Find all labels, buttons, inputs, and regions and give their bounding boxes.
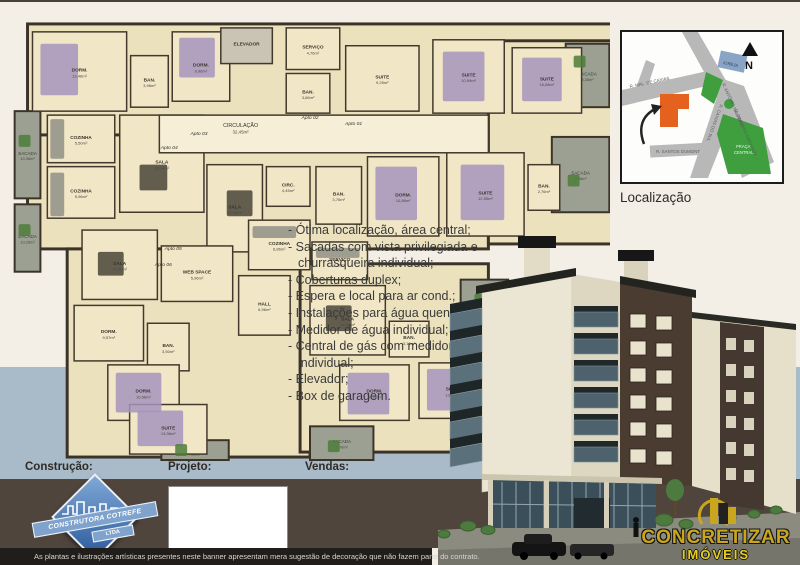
plan-room-area: 10,26m² [20,239,35,244]
car [512,542,566,556]
shrub [460,521,476,531]
plan-room-area: 2,76m² [538,189,551,194]
window [744,444,754,456]
balcony-slab [574,387,618,393]
plan-room-area: 5,50m² [75,141,88,146]
building-pillar [544,480,549,528]
window [726,390,736,402]
window [630,422,646,436]
window [726,468,736,480]
plan-room-area: 5,96m² [75,194,88,199]
balcony-glass [574,393,618,408]
plan-room-area: 6,86m² [273,247,286,252]
sales-logo-subtitle: IMÓVEIS [636,547,796,562]
construction-label: Construção: [25,461,93,473]
building-pillar [488,480,493,528]
north-label: N [745,60,753,72]
window [630,341,646,355]
sales-logo-name: CONCRETIZAR [636,527,796,549]
window [726,364,736,376]
balcony-slab [574,360,618,366]
plan-room-area: 9,57m² [102,335,115,340]
window [744,340,754,352]
plan-corridor [159,115,488,153]
plan-room-area: 10,56m² [136,394,151,399]
balcony-glass [574,447,618,462]
plan-apartment-label: Apto 03 [189,131,207,137]
banner: SACADA10,36m²SACADA10,26m²SACADA8,36m²SA… [0,0,800,565]
window [744,418,754,430]
plan-room-area: 10,36m² [20,156,35,161]
shrub [481,526,495,535]
plan-room-area: 4,76m² [307,50,320,55]
building-left-face [482,274,572,492]
window [656,397,672,411]
window [656,316,672,330]
plan-circulation-label: CIRCULAÇÃO [223,122,258,129]
plan-circulation-area: 32,45m² [233,129,250,134]
street-label: R. SANTOS DUMONT [656,149,700,154]
map-title: Localização [620,190,788,205]
window [630,368,646,382]
builder-logo: CONSTRUTORA COTREFE LTDA [30,478,160,556]
plan-room-area: 9,25m² [376,80,389,85]
window [744,470,754,482]
building-chimney-cap [518,236,556,248]
plan-furniture [574,56,586,68]
window [656,451,672,465]
car-wheel [550,552,558,560]
plan-room-area: 10,86m² [396,198,411,203]
sales-label: Vendas: [305,461,349,473]
plan-room-area: 12,55m² [478,196,493,201]
plan-room-area: 15,68m² [227,210,242,215]
plan-room-area: 20,14m² [154,165,169,170]
plan-room-area: 4,45m² [282,188,295,193]
plan-furniture [19,224,31,236]
window [744,366,754,378]
plan-room-area: 3,50m² [162,349,175,354]
plan-room-area: 3,76m² [332,197,345,202]
car-cabin [524,534,552,544]
project-logo-placeholder [168,486,288,554]
plan-furniture [568,175,580,187]
plan-room-area: 21,50m² [112,267,127,272]
balcony-slab [574,306,618,312]
plan-room-area: 8,36m² [581,77,594,82]
plan-furniture [50,119,64,159]
window [656,343,672,357]
plan-apartment-label: Apto 06 [154,262,172,268]
window [630,314,646,328]
sales-logo-building-icon [692,488,740,528]
window [630,449,646,463]
sales-logo: CONCRETIZAR IMÓVEIS [636,488,796,564]
balcony-glass [574,366,618,381]
plan-room-area: 10,99m² [461,78,476,83]
plan-apartment-label: Apto 01 [344,121,362,127]
plan-room-label: ELEVADOR [234,42,261,48]
window [726,338,736,350]
plan-apartment-label: Apto 05 [164,246,182,252]
plan-furniture [50,173,64,217]
plan-room-area: 3,96m² [143,83,156,88]
plan-room-area: 13,96m² [161,431,176,436]
window [726,442,736,454]
balcony-slab [574,333,618,339]
map-pointer-arrow [641,109,655,144]
location-map-frame: N R. MAL. DE CAXIAS R. ANTÔNIO NAVARRO R… [620,30,784,184]
car-wheel [601,553,608,560]
fine-print: As plantas e ilustrações artísticas pres… [0,548,432,565]
car-wheel [520,552,528,560]
plan-furniture [175,444,187,456]
plan-room-area: 3,66m² [302,95,315,100]
map-subject-building [660,94,689,127]
project-label: Projeto: [168,461,211,473]
plan-apartment-label: Apto 04 [160,145,178,151]
plan-room-area: 5,96m² [191,275,204,280]
location-map-block: N R. MAL. DE CAXIAS R. ANTÔNIO NAVARRO R… [620,30,788,205]
plan-room-area: 16,08m² [539,82,554,87]
plan-room-area: 6,96m² [258,307,271,312]
praca-label: CENTRAL [734,150,754,155]
plan-room-area: 13,46m² [72,73,87,78]
window [744,392,754,404]
window [630,395,646,409]
balcony-glass [574,312,618,327]
plan-room-area: 9,96m² [195,68,208,73]
scan-edge [0,0,800,2]
plan-furniture [19,135,31,147]
north-arrow-icon [742,42,758,56]
window [656,370,672,384]
balcony-slab [574,441,618,447]
balcony-glass [574,420,618,435]
shrub [438,530,450,538]
plan-room-label: SACADA [18,151,38,156]
location-map: N R. MAL. DE CAXIAS R. ANTÔNIO NAVARRO R… [622,32,778,178]
car-wheel [575,553,582,560]
balcony-glass [574,339,618,354]
plan-apartment-label: Apto 02 [300,115,318,121]
balcony-slab [574,414,618,420]
plan-furniture [328,440,340,452]
building-chimney-cap [618,250,654,261]
building-pillar [604,482,609,528]
window [656,424,672,438]
praca-label: PRAÇA [736,144,751,149]
window [726,416,736,428]
